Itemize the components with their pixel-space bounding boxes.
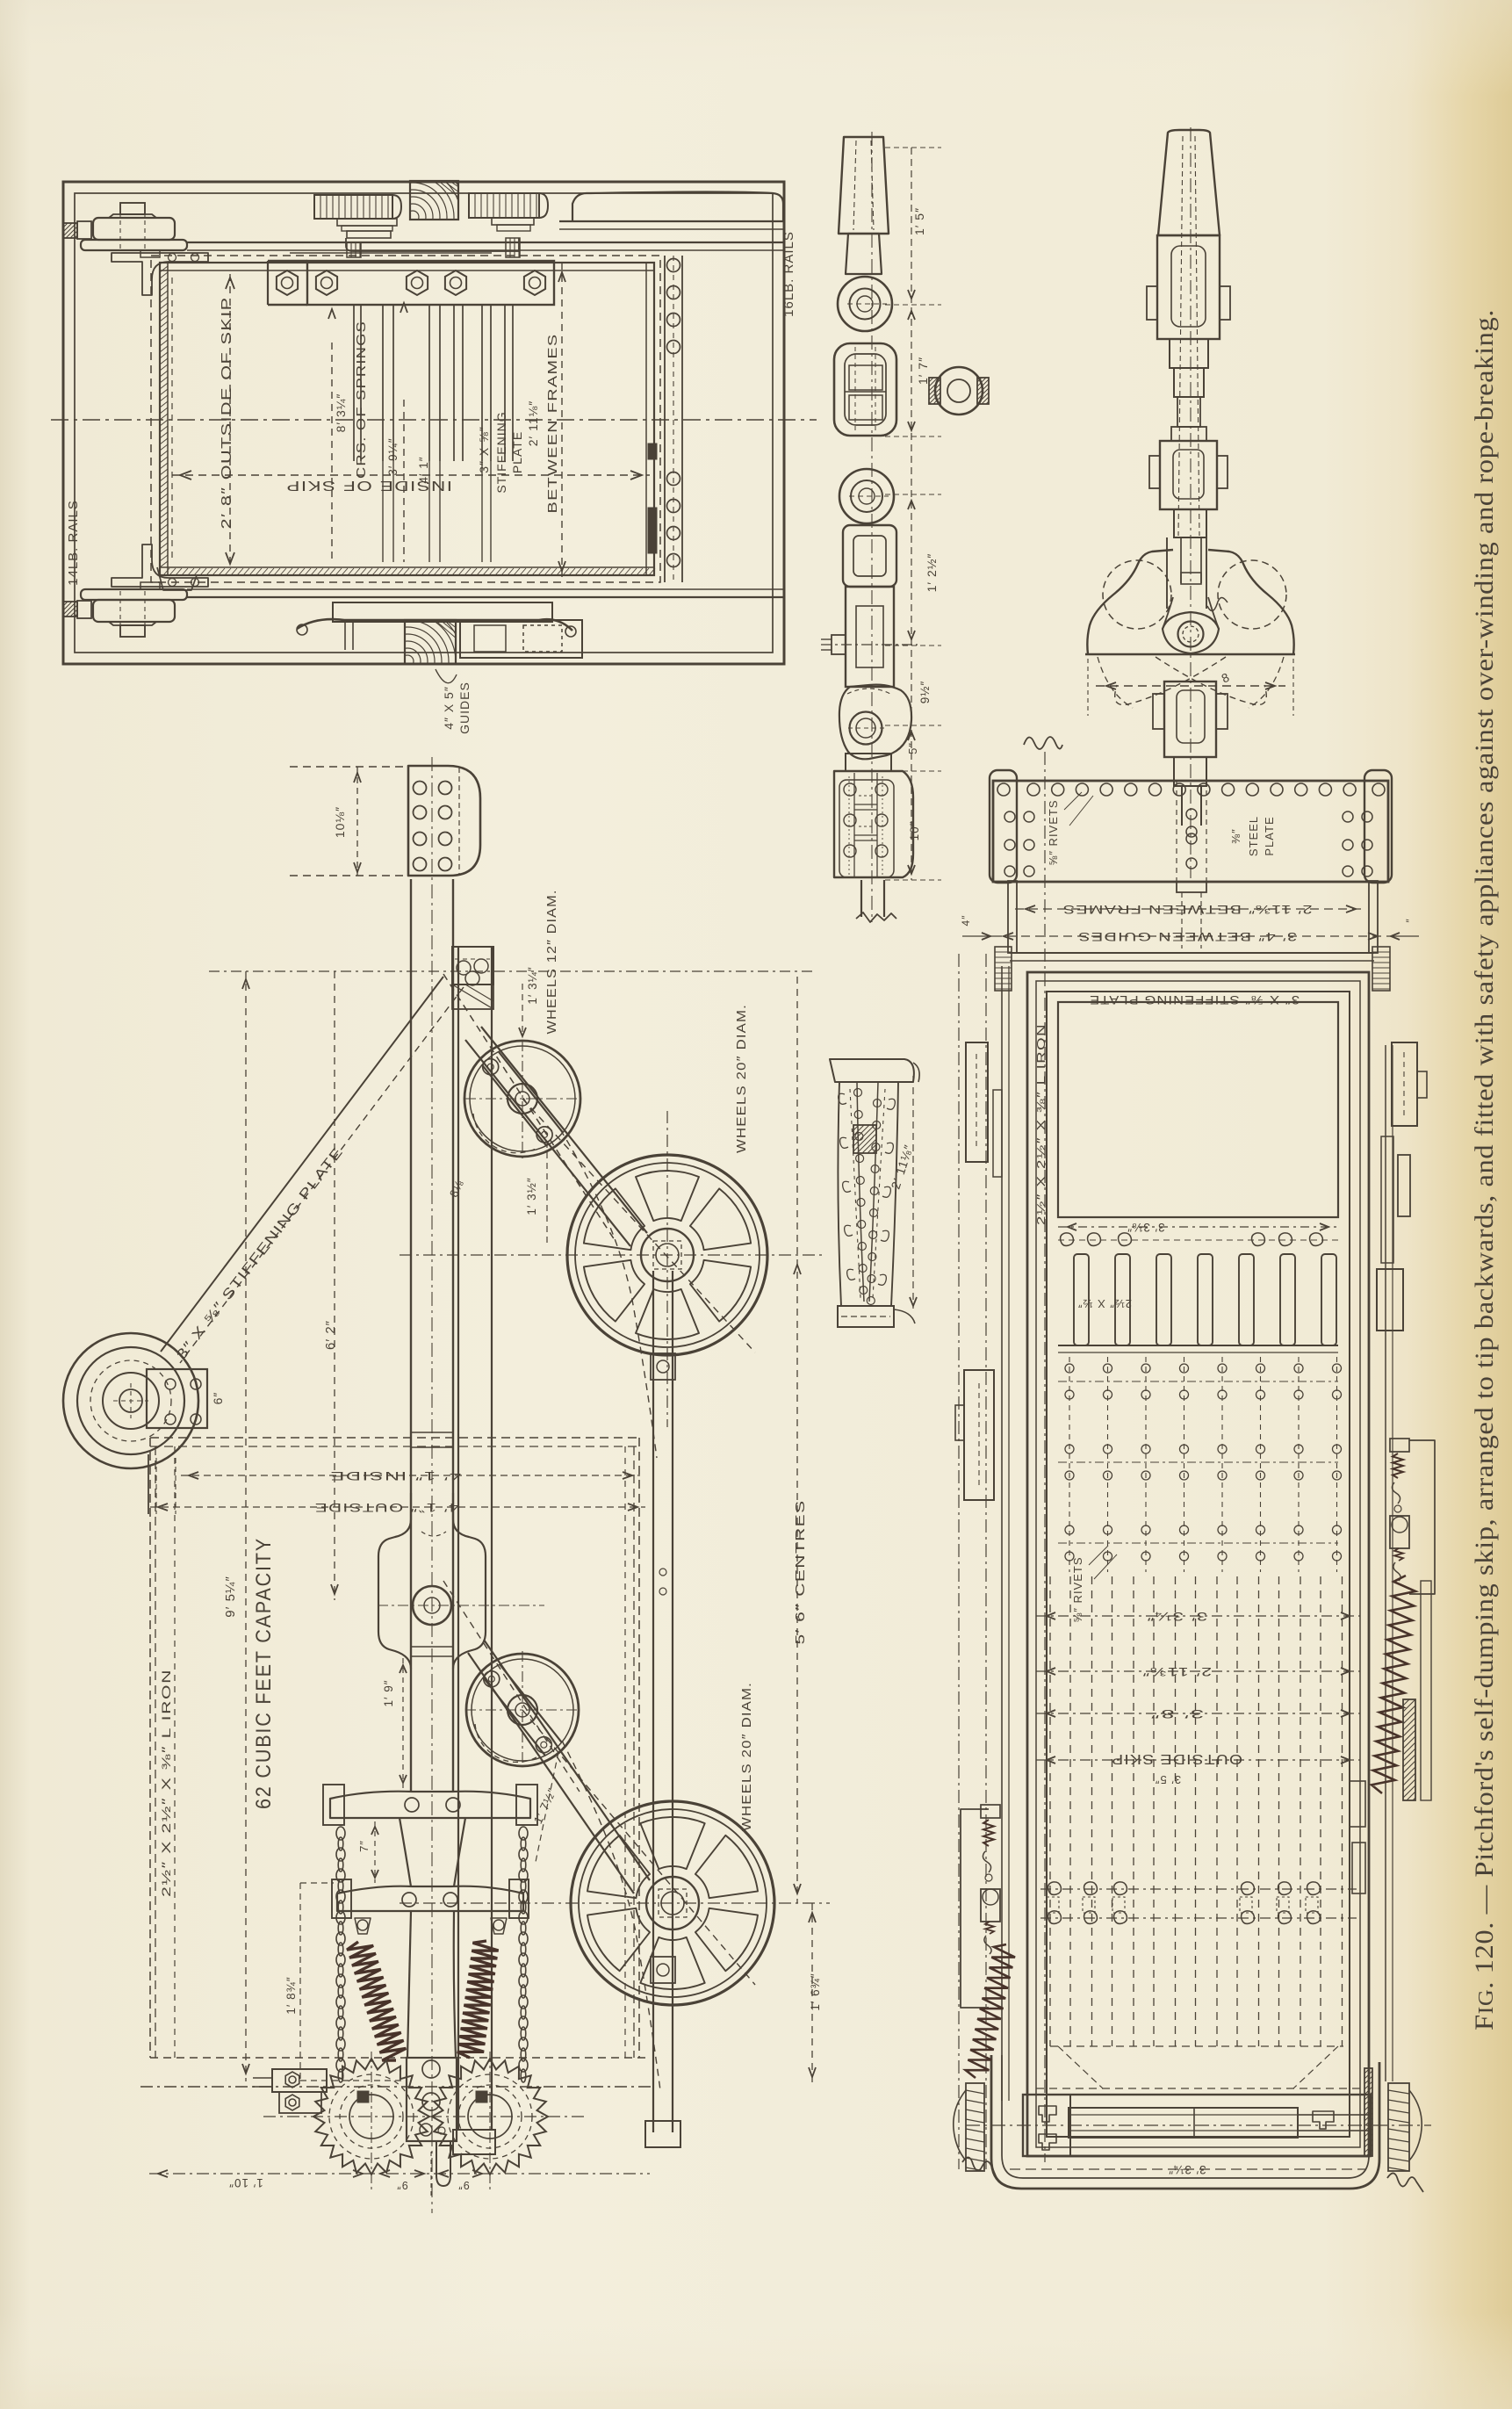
- svg-text:62 CUBIC FEET CAPACITY: 62 CUBIC FEET CAPACITY: [252, 1537, 276, 1809]
- svg-text:6″: 6″: [211, 1392, 225, 1405]
- svg-text:3″ X ⅝″: 3″ X ⅝″: [477, 426, 491, 473]
- svg-text:3″ X ⅝″ STIFFENING PLATE: 3″ X ⅝″ STIFFENING PLATE: [1089, 993, 1300, 1006]
- svg-text:4′ 1‶″ OUTSIDE: 4′ 1‶″ OUTSIDE: [314, 1501, 459, 1515]
- svg-text:9½″: 9½″: [918, 681, 932, 704]
- svg-text:9″: 9″: [396, 2179, 407, 2191]
- svg-text:″: ″: [1404, 918, 1416, 922]
- svg-text:OUTSIDE SKIP: OUTSIDE SKIP: [1111, 1751, 1242, 1766]
- svg-text:16LB. RAILS: 16LB. RAILS: [781, 231, 796, 317]
- svg-text:1′ 2½″: 1′ 2½″: [925, 553, 939, 593]
- svg-text:10⅛″: 10⅛″: [333, 806, 347, 838]
- svg-text:GUIDES: GUIDES: [457, 682, 472, 734]
- svg-text:5″: 5″: [906, 742, 919, 754]
- svg-text:3′ 3⅛″: 3′ 3⅛″: [1127, 1221, 1164, 1234]
- svg-text:3′ 8″: 3′ 8″: [1149, 1707, 1204, 1720]
- svg-text:⅝″ RIVETS: ⅝″ RIVETS: [1047, 799, 1060, 865]
- svg-text:2′ 11⅜″ BETWEEN FRAMES: 2′ 11⅜″ BETWEEN FRAMES: [1062, 903, 1313, 917]
- svg-text:10″: 10″: [908, 821, 921, 841]
- svg-text:1′ 3¼″: 1′ 3¼″: [526, 966, 539, 1004]
- svg-text:3′ 5″: 3′ 5″: [1155, 1773, 1181, 1786]
- svg-text:2′ 11⅛″: 2′ 11⅛″: [526, 400, 540, 446]
- svg-text:1′ 7″: 1′ 7″: [916, 357, 930, 385]
- svg-text:BETWEEN FRAMES: BETWEEN FRAMES: [545, 334, 560, 514]
- svg-text:PLATE: PLATE: [510, 431, 524, 473]
- svg-text:2½″ X 2½″ X ⅜″ L IRON: 2½″ X 2½″ X ⅜″ L IRON: [1035, 1023, 1048, 1225]
- svg-text:3′ 9¼″: 3′ 9¼″: [386, 437, 400, 475]
- svg-text:4″: 4″: [960, 915, 972, 927]
- svg-text:3′ 3¼″: 3′ 3¼″: [1168, 2163, 1206, 2176]
- svg-text:CRS. OF SPRINGS: CRS. OF SPRINGS: [354, 321, 369, 479]
- svg-text:1′ 10″: 1′ 10″: [228, 2176, 263, 2189]
- svg-text:7″: 7″: [357, 1840, 371, 1852]
- svg-text:STIFFENING: STIFFENING: [494, 411, 508, 493]
- svg-text:3′ 4″ BETWEEN GUIDES: 3′ 4″ BETWEEN GUIDES: [1077, 930, 1297, 944]
- svg-text:WHEELS 20″ DIAM.: WHEELS 20″ DIAM.: [740, 1682, 754, 1831]
- svg-text:4′ 1″ INSIDE: 4′ 1″ INSIDE: [329, 1469, 461, 1483]
- svg-text:STEEL: STEEL: [1247, 816, 1260, 856]
- svg-text:1′ 9″: 1′ 9″: [382, 1679, 395, 1706]
- svg-text:9′ 5¼″: 9′ 5¼″: [223, 1576, 238, 1617]
- svg-text:14LB. RAILS: 14LB. RAILS: [66, 500, 81, 586]
- svg-text:2′ 11⅜″: 2′ 11⅜″: [1141, 1665, 1212, 1678]
- svg-text:⅝″ RIVETS: ⅝″ RIVETS: [1071, 1556, 1084, 1622]
- svg-text:5′ 6″ CENTRES: 5′ 6″ CENTRES: [793, 1500, 808, 1645]
- svg-text:2½″ X 2½″ X ⅜″ L IRON: 2½″ X 2½″ X ⅜″ L IRON: [160, 1669, 173, 1897]
- svg-text:1′ 5″: 1′ 5″: [912, 207, 926, 235]
- svg-text:4″ X 5″: 4″ X 5″: [442, 686, 456, 730]
- svg-text:2½″ X ½″: 2½″ X ½″: [1077, 1297, 1132, 1310]
- svg-text:1′ 6¾″: 1′ 6¾″: [809, 1973, 822, 2010]
- svg-text:WHEELS 12″ DIAM.: WHEELS 12″ DIAM.: [545, 890, 559, 1035]
- svg-text:PLATE: PLATE: [1263, 816, 1276, 855]
- svg-text:8′ 3¼″: 8′ 3¼″: [334, 393, 348, 433]
- svg-text:1′ 3½″: 1′ 3½″: [525, 1177, 538, 1215]
- svg-text:1′ 8¾″: 1′ 8¾″: [284, 1976, 298, 2014]
- svg-text:2′ 8″ OUTSIDE OF SKIP: 2′ 8″ OUTSIDE OF SKIP: [220, 297, 234, 530]
- svg-text:WHEELS 20″ DIAM.: WHEELS 20″ DIAM.: [735, 1004, 749, 1153]
- svg-text:⅜″: ⅜″: [1229, 828, 1242, 843]
- svg-text:INSIDE OF SKIP: INSIDE OF SKIP: [285, 478, 452, 493]
- svg-text:6′ 2″: 6′ 2″: [323, 1320, 338, 1350]
- svg-text:9″: 9″: [457, 2179, 469, 2191]
- svg-text:3′ 3¼″: 3′ 3¼″: [1146, 1610, 1207, 1623]
- svg-text:FIG. 120. — Pitchford's self-d: FIG. 120. — Pitchford's self-dumping ski…: [1470, 309, 1499, 2030]
